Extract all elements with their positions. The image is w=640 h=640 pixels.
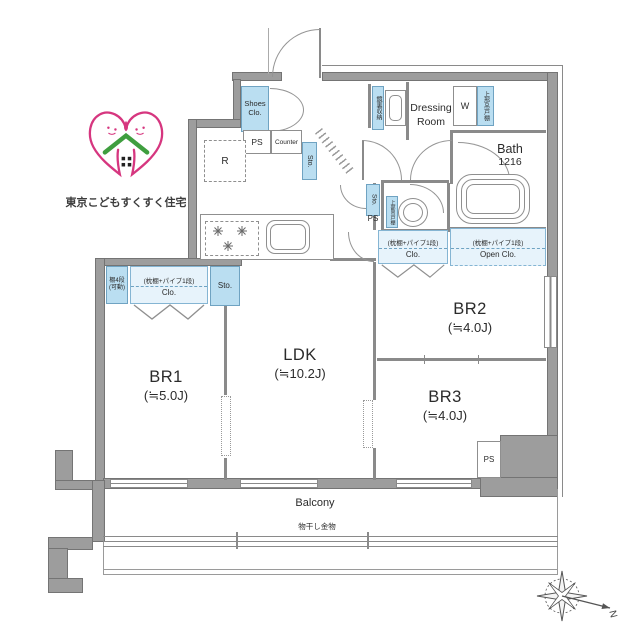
- storage-hall-1: Sto.: [302, 142, 317, 180]
- vanity-sink: [385, 90, 406, 126]
- dressing-door-arc: [410, 140, 452, 180]
- upper-cabinet-toilet: 上部吊戸棚: [386, 196, 398, 228]
- upper-cabinet-label: 上部吊戸棚: [390, 200, 395, 225]
- refrigerator-space: R: [204, 140, 246, 182]
- br3-size: (≒4.0J): [395, 408, 495, 424]
- pipe-space-entrance: PS: [243, 130, 271, 154]
- logo-title: 東京こどもすくすく住宅: [58, 194, 194, 210]
- window-br1: [110, 479, 188, 488]
- window-br3: [396, 479, 472, 488]
- outer-line-top: [322, 65, 563, 66]
- ps-label: PS: [484, 455, 495, 464]
- burner-icon: [236, 225, 248, 237]
- ldk-name: LDK: [248, 346, 352, 365]
- mirror-cabinet: 鏡裏収納: [372, 86, 384, 130]
- wall-br1-ldk-b: [224, 458, 227, 480]
- shoes-closet-door-arc-upper: [270, 88, 304, 110]
- porch-line: [268, 28, 269, 74]
- ldk-size: (≒10.2J): [248, 366, 352, 382]
- room-label-dressing: Dressing Room: [404, 102, 458, 129]
- storage-label: Sto.: [370, 194, 377, 206]
- closet-spec-label: (枕棚+パイプ1段): [379, 236, 447, 249]
- burner-icon: [222, 240, 234, 252]
- logo-heart-house-icon: [82, 104, 170, 192]
- window-br2: [544, 276, 557, 348]
- bathtub: [456, 174, 530, 224]
- br2-size: (≒4.0J): [420, 320, 520, 336]
- room-label-bath: Bath 1216: [480, 142, 540, 168]
- wall-ldk-br3: [373, 448, 376, 480]
- balcony-edge-line: [104, 569, 557, 570]
- closet-label: Clo.: [379, 249, 447, 259]
- washroom-door-arc: [340, 185, 366, 209]
- closet-label: Clo.: [131, 287, 207, 297]
- wall-diagonal-hatch: [315, 128, 354, 175]
- wall-br2-br3: [377, 358, 546, 361]
- bath-name: Bath: [480, 142, 540, 156]
- entrance-door-arc: [272, 29, 320, 77]
- open-closet-br2: (枕棚+パイプ1段) Open Clo.: [450, 228, 546, 266]
- wall-toilet-top: [381, 180, 449, 183]
- br1-name: BR1: [120, 368, 212, 387]
- closet-spec-label: (枕棚+パイプ1段): [131, 274, 207, 287]
- room-label-br3: BR3 (≒4.0J): [395, 388, 495, 424]
- wall-step-6: [48, 578, 83, 593]
- upper-cabinet-label: 上部吊戸棚: [483, 91, 489, 121]
- storage-br1: Sto.: [210, 266, 240, 306]
- outer-line-right: [562, 65, 563, 497]
- wall-top-main: [322, 72, 558, 81]
- drying-fixture-post-1: [236, 532, 238, 549]
- kitchen-sink: [266, 220, 310, 254]
- storage-label: Sto.: [218, 281, 232, 290]
- pipe-space-br3: PS: [477, 441, 501, 478]
- wall-tick-2: [478, 355, 479, 364]
- washer-label: W: [461, 101, 470, 111]
- sliding-door-pocket-br1: [221, 396, 231, 456]
- wall-ldk-br2-b: [373, 262, 376, 400]
- ps-label: PS: [251, 137, 262, 147]
- balcony-label: Balcony: [250, 497, 380, 509]
- br2-name: BR2: [420, 300, 520, 319]
- balcony-rail-line-3: [103, 546, 558, 547]
- drying-fixture-label: 物干し金物: [272, 521, 362, 532]
- compass-rose: N: [524, 564, 620, 632]
- storage-label: Sto.: [306, 155, 313, 167]
- balcony-rail-line-2: [103, 541, 558, 542]
- bath-size: 1216: [480, 156, 540, 168]
- room-label-ldk: LDK (≒10.2J): [248, 346, 352, 382]
- closet-br1: (枕棚+パイプ1段) Clo.: [130, 266, 208, 304]
- floorplan-page: { "logo": { "title": "東京こどもすくすく住宅" }, "r…: [0, 0, 640, 640]
- wall-br1-left: [95, 258, 105, 490]
- wall-shoes-side: [233, 79, 241, 123]
- wall-left-upper: [188, 119, 197, 268]
- wall-br1-ldk-a: [224, 305, 227, 395]
- mirror-cabinet-label: 鏡裏収納: [375, 96, 381, 120]
- toilet-seat: [403, 203, 423, 222]
- room-label-br1: BR1 (≒5.0J): [120, 368, 212, 404]
- closet-spec-label: (枕棚+パイプ1段): [451, 236, 545, 249]
- wall-tick-1: [424, 355, 425, 364]
- storage-hall-2: Sto.: [366, 184, 380, 216]
- movable-shelf-label: 棚4段(可動): [107, 278, 127, 292]
- upper-cabinet-washer: 上部吊戸棚: [477, 86, 494, 126]
- wall-toilet-right: [447, 183, 450, 230]
- shoes-closet-door-arc-lower: [270, 110, 304, 132]
- room-label-br2: BR2 (≒4.0J): [420, 300, 520, 336]
- bathtub-basin: [466, 184, 520, 214]
- logo: 東京こどもすくすく住宅: [58, 104, 194, 218]
- kitchen-sink-basin: [270, 224, 306, 250]
- vanity-basin: [389, 95, 402, 121]
- closet-br2: (枕棚+パイプ1段) Clo.: [378, 230, 448, 264]
- north-label: N: [606, 609, 618, 619]
- counter: Counter: [271, 130, 302, 154]
- open-closet-label: Open Clo.: [451, 249, 545, 259]
- sliding-door-pocket-br3: [363, 400, 373, 448]
- burner-icon: [212, 225, 224, 237]
- br3-name: BR3: [395, 388, 495, 407]
- wall-toilet-left: [381, 183, 384, 232]
- br1-size: (≒5.0J): [120, 388, 212, 404]
- bifold-door-marks-br1: [132, 304, 206, 320]
- wall-corner-block-a: [500, 435, 558, 479]
- refrigerator-label: R: [221, 156, 228, 167]
- drying-fixture-post-2: [367, 532, 369, 549]
- toilet-bowl: [398, 198, 428, 227]
- window-ldk: [240, 479, 318, 488]
- wall-bath-top: [450, 130, 546, 133]
- hall-door-arc: [362, 140, 402, 180]
- wall-vanity: [368, 84, 371, 128]
- counter-label: Counter: [275, 139, 298, 146]
- pipe-space-hall-label: PS: [362, 215, 384, 224]
- balcony-rail-line-1: [103, 536, 558, 537]
- movable-shelf: 棚4段(可動): [106, 266, 128, 304]
- wall-right: [547, 72, 558, 440]
- shoes-closet-label: Shoes Clo.: [242, 100, 268, 117]
- shoes-closet: Shoes Clo.: [241, 86, 269, 132]
- bifold-door-marks-br2: [380, 264, 446, 278]
